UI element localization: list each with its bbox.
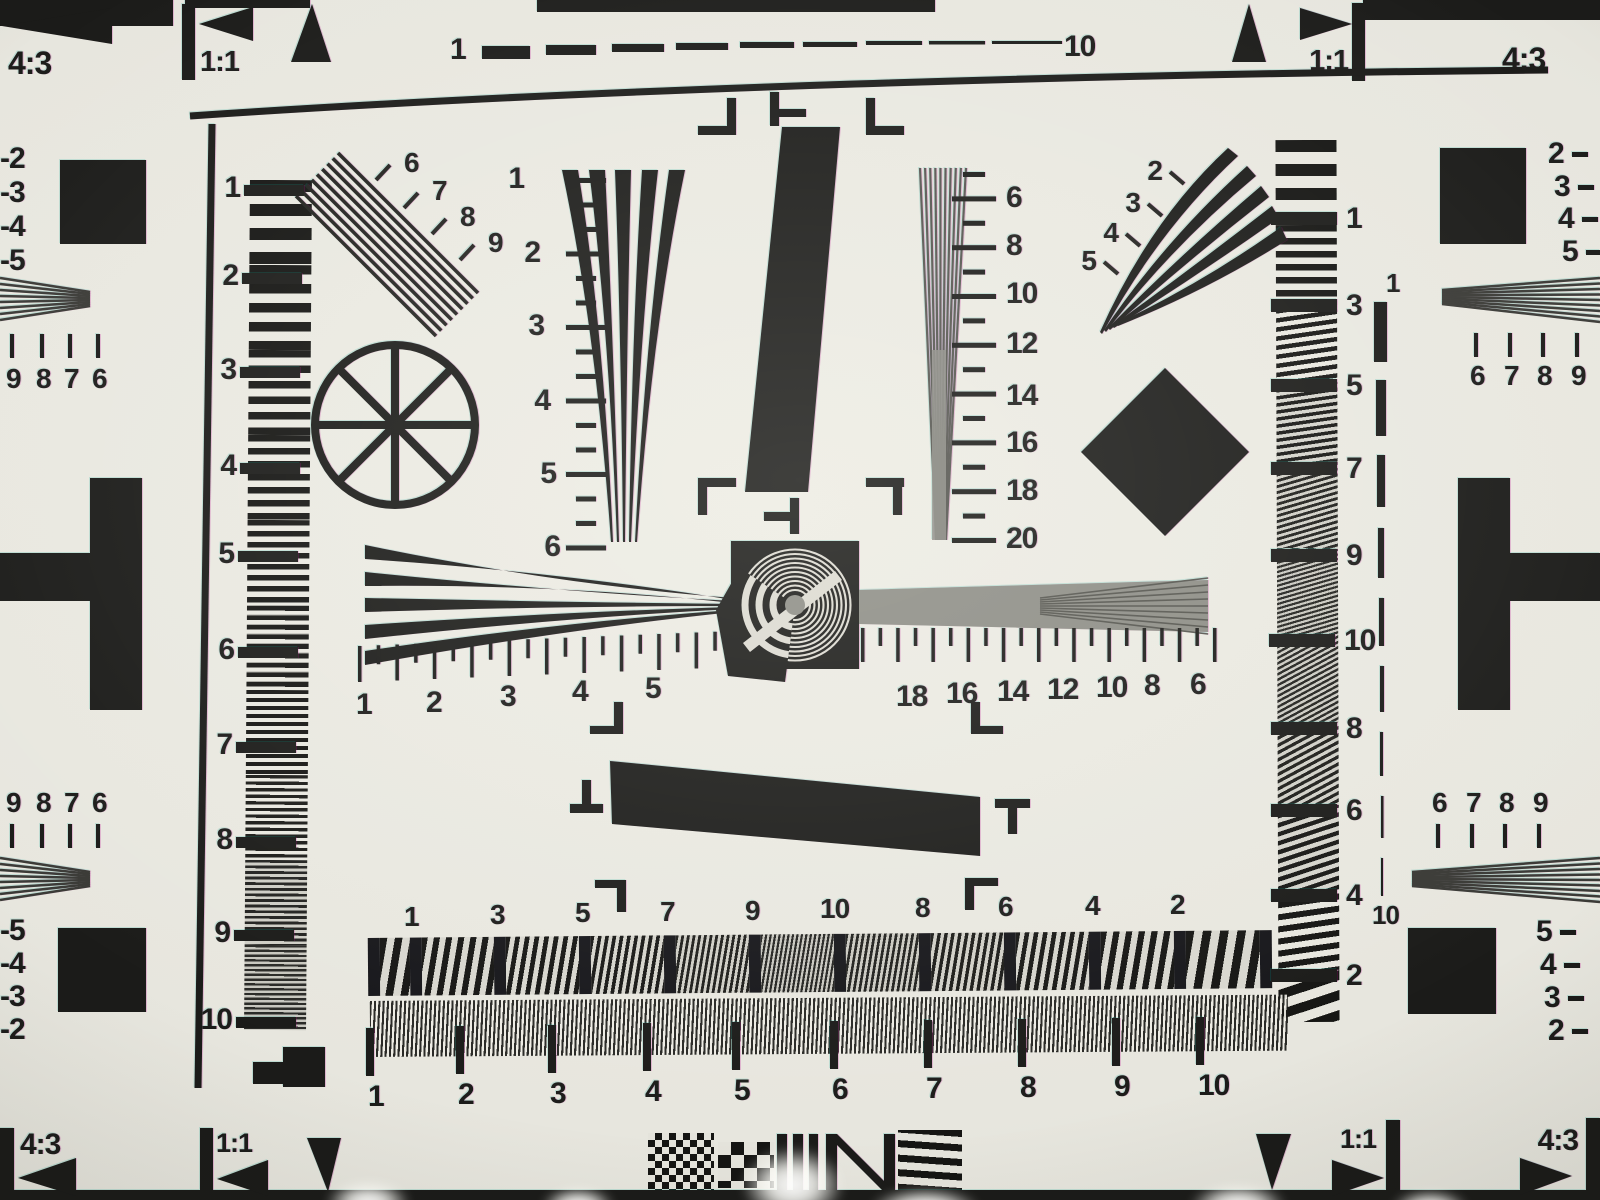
- scale-label: 10: [1198, 1069, 1230, 1102]
- ruler-tick: [414, 644, 418, 663]
- scale-label: 10: [1096, 671, 1128, 704]
- scale-label: 9: [6, 363, 21, 394]
- scale-label: 3: [500, 680, 516, 713]
- ruler-tick: [879, 628, 883, 646]
- wedge-line: [307, 185, 447, 325]
- ruler-tick: [377, 645, 381, 664]
- left-digit-labels-bottom: 9876: [6, 787, 107, 848]
- scale-dash: [963, 172, 985, 177]
- scale-dash: [566, 472, 606, 477]
- right-wedge-scale: 68101214161820: [1006, 181, 1039, 555]
- scale-dash: [566, 325, 606, 330]
- scale-label: 8: [1144, 669, 1160, 702]
- scale-dash: [576, 203, 596, 208]
- tick-mark: [68, 334, 72, 358]
- scale-dash: [963, 221, 985, 226]
- right-dashed-scale: [1374, 302, 1387, 896]
- scale-label: 6: [1470, 360, 1485, 391]
- scale-label: 10: [201, 1003, 233, 1036]
- ruler-tick: [1213, 628, 1217, 662]
- triangle-up-icon: [1232, 4, 1266, 62]
- triangle-up-icon: [291, 4, 331, 62]
- scale-label: 4: [1540, 948, 1557, 981]
- left-wedge-scale: 123456: [508, 162, 560, 563]
- tick-mark: [1271, 212, 1337, 225]
- tick-mark: [1503, 824, 1507, 848]
- tick-mark: [234, 930, 294, 941]
- tick-mark: [1271, 969, 1337, 982]
- tick-mark: [40, 824, 44, 848]
- scale-label: 3: [1554, 170, 1570, 203]
- scale-label: 12: [1006, 327, 1038, 360]
- tick-mark: [1541, 333, 1545, 357]
- scale-label: 9: [1533, 787, 1548, 818]
- tick-mark: [236, 1017, 296, 1028]
- middle-horizontal-bar: [570, 702, 1030, 912]
- right-dashed-scale-labels: 110: [1372, 268, 1400, 930]
- tick-mark: [236, 742, 296, 753]
- scale-label: 10: [1064, 30, 1096, 63]
- tick-mark: [1271, 804, 1337, 817]
- scale-label: 8: [460, 201, 475, 232]
- tick-mark: [643, 1023, 651, 1071]
- triangle-down-icon: [1256, 1134, 1291, 1190]
- scale-label: 5: [1081, 245, 1096, 276]
- ruler-tick: [657, 634, 661, 670]
- tick-mark: [1269, 634, 1335, 647]
- ruler-tick: [395, 645, 399, 681]
- ruler-tick: [949, 628, 953, 646]
- wedge-line: [333, 158, 473, 298]
- scale-label: 4: [572, 675, 589, 708]
- tick-mark: [40, 334, 44, 358]
- tick-mark: [1572, 152, 1588, 157]
- scale-dash: [963, 367, 985, 372]
- scale-label: 18: [1006, 474, 1038, 507]
- scale-label: -4: [0, 947, 26, 980]
- vertical-wedge-left: [562, 170, 685, 551]
- right-digit-labels-top: 6789: [1470, 333, 1586, 391]
- scale-label: 3: [1544, 981, 1560, 1014]
- scale-label: 6: [1190, 668, 1206, 701]
- scale-label: -4: [0, 210, 26, 243]
- scale-label: 8: [915, 892, 930, 923]
- scale-dash: [963, 318, 985, 323]
- scale-label: 3: [528, 309, 544, 342]
- scale-label: 7: [64, 787, 79, 818]
- scale-dash: [952, 343, 996, 348]
- scale-label: 5: [218, 537, 234, 570]
- wedge-line: [301, 191, 441, 331]
- scale-label: 5: [645, 672, 661, 705]
- ruler-tick: [695, 633, 699, 669]
- scale-label: 5: [1536, 915, 1552, 948]
- ruler-tick: [1178, 628, 1182, 662]
- ruler-tick: [984, 628, 988, 646]
- scale-label: 3: [490, 899, 505, 930]
- ruler-tick: [713, 632, 717, 651]
- scale-label: 2: [1548, 137, 1564, 170]
- scale-label: 6: [92, 787, 107, 818]
- scale-dash: [952, 440, 996, 445]
- scale-dash: [576, 276, 596, 281]
- tick-mark: [1572, 1029, 1588, 1034]
- scale-label: 8: [1537, 360, 1552, 391]
- scale-label: 4: [534, 384, 551, 417]
- diagonal-stripe-bundle: [296, 153, 478, 336]
- tick-mark: [238, 551, 298, 562]
- scale-label: 4: [1103, 217, 1119, 248]
- ruler-tick: [676, 633, 680, 652]
- tick-mark: [10, 824, 14, 848]
- ruler-tick: [931, 628, 935, 662]
- tick-mark: [1582, 217, 1598, 222]
- scale-dash: [566, 252, 606, 257]
- bottom-rowB-labels: 12345678910: [366, 1017, 1230, 1113]
- scale-label: 20: [1006, 522, 1038, 555]
- triangle-right-icon: [1520, 1158, 1572, 1195]
- triangle-down-icon: [307, 1138, 341, 1192]
- scale-label: 1:1: [216, 1128, 253, 1158]
- scale-dash: [576, 497, 596, 502]
- scale-label: 4: [1346, 879, 1363, 912]
- tick-mark: [1018, 1019, 1026, 1067]
- tick-mark: [1436, 824, 1440, 848]
- scale-label: 3: [1125, 187, 1140, 218]
- scale-dash: [952, 489, 996, 494]
- scale-label: 4:3: [8, 45, 51, 81]
- scale-label: -5: [0, 914, 25, 947]
- scale-label: 6: [92, 363, 107, 394]
- tick-mark: [1196, 1017, 1204, 1065]
- central-vertical-bar: [698, 92, 904, 534]
- tick-mark: [242, 273, 302, 284]
- tick-mark: [96, 824, 100, 848]
- scale-label: 4:3: [20, 1128, 61, 1161]
- scale-label: 6: [1432, 787, 1447, 818]
- scale-label: 2: [1346, 959, 1362, 992]
- scale-label: 7: [1466, 787, 1481, 818]
- tick-mark: [1271, 299, 1337, 312]
- scale-label: 1:1: [1340, 1124, 1377, 1154]
- scale-label: 1: [508, 162, 524, 195]
- scale-label: 6: [1346, 794, 1362, 827]
- scale-dash: [576, 521, 596, 526]
- tick-mark: [1578, 185, 1594, 190]
- tick-mark: [236, 837, 296, 848]
- ruler-tick: [1037, 628, 1041, 662]
- left-negative-labels-top: -2-3-4-5: [0, 142, 26, 277]
- scale-label: 14: [997, 675, 1030, 708]
- scale-label: 7: [432, 175, 447, 206]
- scale-dash: [952, 392, 996, 397]
- scale-label: 1: [1346, 202, 1362, 235]
- scale-dash: [963, 270, 985, 275]
- tick-mark: [1560, 930, 1576, 935]
- scale-label: 8: [1499, 787, 1514, 818]
- scale-label: 8: [1006, 229, 1022, 262]
- scale-label: 2: [1170, 889, 1185, 920]
- ruler-tick: [545, 639, 549, 675]
- vertical-wedge-right: [920, 168, 996, 543]
- scale-label: 4:3: [1502, 41, 1545, 77]
- tick-mark: [924, 1020, 932, 1068]
- center-ruler-right-labels: 181614121086: [896, 668, 1206, 713]
- scale-label: 6: [544, 530, 560, 563]
- scale-label: 8: [216, 823, 232, 856]
- scale-label: -3: [0, 980, 25, 1013]
- scale-dash: [576, 350, 596, 355]
- scale-label: 10: [820, 893, 850, 924]
- tick-mark: [240, 463, 300, 474]
- ruler-tick: [452, 642, 456, 661]
- tick-mark: [1271, 462, 1337, 475]
- tick-mark: [1271, 722, 1337, 735]
- scale-dash: [576, 448, 596, 453]
- scale-label: 3: [220, 353, 236, 386]
- ruler-tick: [1195, 628, 1199, 646]
- scale-label: -2: [0, 1013, 25, 1046]
- scale-dash: [566, 546, 606, 551]
- ruler-tick: [1125, 628, 1129, 646]
- scale-dash: [566, 399, 606, 404]
- tick-mark: [456, 1026, 464, 1074]
- scale-label: -2: [0, 142, 25, 175]
- scale-label: 9: [1571, 360, 1586, 391]
- scale-label: 3: [550, 1077, 566, 1110]
- scale-dash: [566, 178, 606, 183]
- diagonal-wedge-scale: 6789: [404, 147, 503, 258]
- scale-label: 8: [1020, 1071, 1036, 1104]
- ruler-tick: [967, 628, 971, 662]
- ruler-tick: [639, 635, 643, 654]
- tick-mark: [548, 1025, 556, 1073]
- spoke-wheel: [315, 345, 475, 505]
- ruler-tick: [1090, 628, 1094, 646]
- wedge-line: [312, 180, 452, 320]
- scale-label: 1: [1386, 268, 1400, 298]
- tick-mark: [1537, 824, 1541, 848]
- triangle-left-icon: [199, 7, 253, 41]
- scale-label: 6: [218, 633, 234, 666]
- scale-label: 9: [6, 787, 21, 818]
- scale-dash: [576, 301, 596, 306]
- horizontal-wedge-right: [859, 578, 1208, 634]
- tick-mark: [1112, 1018, 1120, 1066]
- scale-label: -5: [0, 244, 25, 277]
- left-digit-labels-top: 9876: [6, 334, 107, 394]
- scale-label: 1: [224, 171, 240, 204]
- curved-fan-scale: 2345: [1081, 155, 1162, 276]
- tick-mark: [96, 334, 100, 358]
- scale-label: 7: [216, 728, 232, 761]
- tick-mark: [238, 647, 298, 658]
- ruler-tick: [489, 641, 493, 660]
- ruler-tick: [1072, 628, 1076, 662]
- ruler-tick: [1002, 628, 1006, 662]
- ruler-tick: [358, 646, 362, 682]
- left-negative-labels-bottom: -5-4-3-2: [0, 914, 26, 1046]
- ruler-tick: [582, 637, 586, 673]
- wedge-line: [1442, 295, 1600, 296]
- scale-label: 1:1: [200, 46, 240, 78]
- scale-label: 7: [660, 896, 675, 927]
- curved-fan-wedge: [1100, 148, 1287, 334]
- scale-label: 5: [540, 457, 556, 490]
- tick-mark: [240, 367, 300, 378]
- scale-label: 16: [1006, 426, 1038, 459]
- tick-mark: [1508, 333, 1512, 357]
- scale-label: 5: [734, 1074, 750, 1107]
- ruler-tick: [1107, 628, 1111, 662]
- wedge-line: [1412, 879, 1600, 880]
- scale-label: 1: [356, 688, 372, 721]
- scale-label: 2: [222, 259, 238, 292]
- scale-label: 8: [1346, 712, 1362, 745]
- scale-label: 9: [488, 227, 503, 258]
- right-negative-labels-top: 2345: [1548, 137, 1600, 268]
- ruler-tick: [433, 643, 437, 679]
- scale-label: 9: [1114, 1070, 1130, 1103]
- ruler-tick: [1055, 628, 1059, 646]
- scale-label: 3: [1346, 289, 1362, 322]
- tick-mark: [10, 334, 14, 358]
- scale-label: 5: [1346, 369, 1362, 402]
- tick-mark: [830, 1021, 838, 1069]
- scale-label: 2: [1548, 1014, 1564, 1047]
- scale-dash: [952, 245, 996, 250]
- iso12233-test-chart-photo: 4:31:11:14:34:31:11:14:3 110 -2-3-4-5 98…: [0, 0, 1600, 1200]
- scale-label: 1: [368, 1080, 384, 1113]
- scale-label: 16: [946, 677, 978, 710]
- right-negative-labels-bottom: 5432: [1536, 915, 1588, 1047]
- scale-label: 4: [1085, 890, 1101, 921]
- bottom-rowA-labels: 13579108642: [404, 889, 1185, 932]
- scale-label: 7: [64, 363, 79, 394]
- ruler-tick: [470, 642, 474, 678]
- ruler-tick: [564, 638, 568, 657]
- top-dashed-scale: [482, 41, 1062, 59]
- scale-label: 18: [896, 680, 928, 713]
- scale-dash: [576, 227, 596, 232]
- ruler-tick: [1019, 628, 1023, 646]
- scale-dash: [576, 374, 596, 379]
- scale-label: 6: [404, 147, 419, 178]
- ruler-tick: [1160, 628, 1164, 646]
- scale-label: 12: [1047, 673, 1079, 706]
- right-digit-labels-bottom: 6789: [1432, 787, 1548, 848]
- left-column-scale: 12345678910: [201, 171, 304, 1036]
- right-column-scale: 13579108642: [1269, 202, 1376, 992]
- ruler-tick: [620, 636, 624, 672]
- scale-label: 5: [575, 897, 590, 928]
- tick-mark: [1474, 333, 1478, 357]
- scale-label: 4: [645, 1075, 662, 1108]
- scale-label: 2: [458, 1078, 474, 1111]
- tick-mark: [1271, 379, 1337, 392]
- tick-mark: [1575, 333, 1579, 357]
- tick-mark: [1568, 996, 1584, 1001]
- ruler-tick: [601, 636, 605, 655]
- ruler-tick: [526, 639, 530, 658]
- scale-label: 7: [1504, 360, 1519, 391]
- scale-dash: [952, 196, 996, 201]
- scale-label: 1:1: [1309, 45, 1349, 77]
- scale-label: 14: [1006, 379, 1039, 412]
- triangle-right-icon: [1300, 8, 1352, 40]
- scale-label: 8: [36, 363, 51, 394]
- ruler-tick: [914, 628, 918, 646]
- scale-dash: [963, 416, 985, 421]
- tick-mark: [68, 824, 72, 848]
- scale-label: 7: [1346, 452, 1362, 485]
- tick-mark: [1470, 824, 1474, 848]
- scale-label: 6: [998, 891, 1013, 922]
- scale-label: 6: [1006, 181, 1022, 214]
- tick-mark: [732, 1022, 740, 1070]
- ruler-tick: [508, 640, 512, 676]
- scale-label: 2: [1147, 155, 1162, 186]
- wedge-line: [296, 196, 436, 336]
- scale-label: 2: [524, 236, 540, 269]
- scale-dash: [963, 514, 985, 519]
- ruler-tick: [861, 628, 865, 662]
- scale-label: 4: [1558, 202, 1575, 235]
- scale-label: 4: [220, 449, 237, 482]
- scale-label: 10: [1006, 277, 1038, 310]
- scale-dash: [952, 294, 996, 299]
- scale-label: 9: [1346, 539, 1362, 572]
- scale-label: 9: [745, 895, 760, 926]
- scale-dash: [952, 538, 996, 543]
- ruler-tick: [896, 628, 900, 662]
- scale-label: 8: [36, 787, 51, 818]
- tick-mark: [1564, 963, 1580, 968]
- scale-label: 10: [1372, 900, 1399, 930]
- tick-mark: [1586, 250, 1600, 255]
- center-bullseye: [716, 541, 859, 682]
- tick-mark: [1271, 889, 1337, 902]
- scale-label: 9: [214, 916, 230, 949]
- scale-label: -3: [0, 176, 25, 209]
- scale-label: 6: [832, 1073, 848, 1106]
- tick-mark: [1271, 549, 1337, 562]
- scale-label: 7: [926, 1072, 942, 1105]
- scale-dash: [576, 423, 596, 428]
- scale-label: 5: [1562, 235, 1578, 268]
- diamond-block: [1081, 368, 1249, 536]
- scale-label: 10: [1344, 624, 1376, 657]
- scale-label: 4:3: [1538, 1124, 1579, 1157]
- scale-label: 1: [450, 33, 466, 66]
- tick-mark: [244, 185, 304, 196]
- tick-mark: [366, 1028, 374, 1076]
- ruler-tick: [1143, 628, 1147, 662]
- scale-label: 2: [426, 686, 442, 719]
- scale-dash: [963, 465, 985, 470]
- scale-label: 1: [404, 901, 419, 932]
